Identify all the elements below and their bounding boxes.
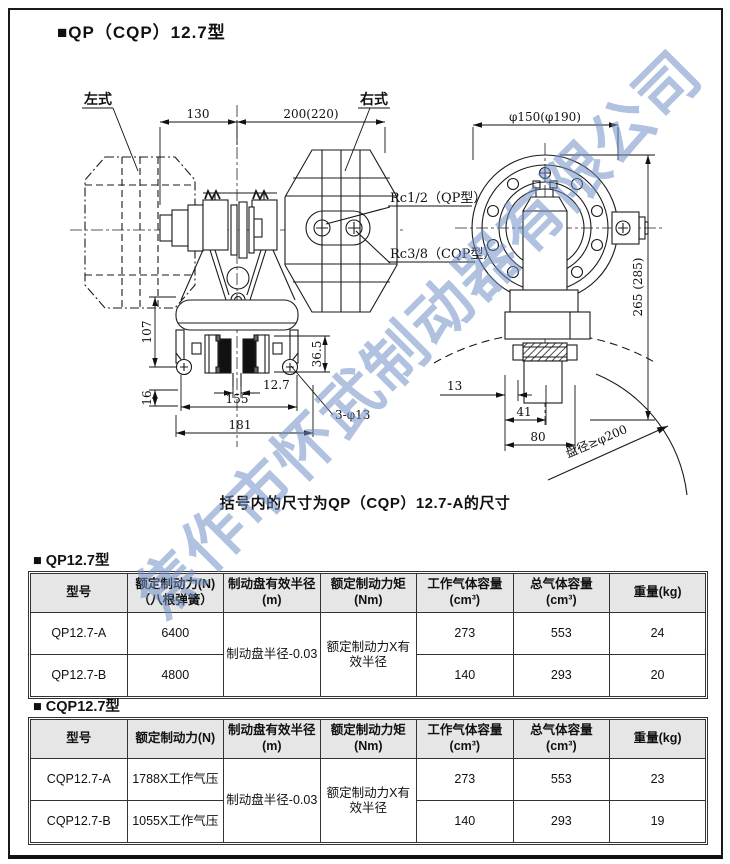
dim-130: 130 (187, 107, 210, 121)
section-title-cqp: ■ CQP12.7型 (33, 695, 120, 716)
col-working-volume: 工作气体容量 (cm³) (417, 720, 514, 759)
drawing-caption: 括号内的尺寸为QP（CQP）12.7-A的尺寸 (0, 492, 730, 513)
col-weight: 重量(kg) (610, 574, 706, 613)
col-model: 型号 (31, 574, 128, 613)
cell-working-volume: 273 (417, 613, 514, 655)
dim-16: 16 (140, 390, 154, 405)
catalog-page: ■QP（CQP）12.7型 (0, 0, 730, 864)
dim-200-220: 200(220) (283, 107, 338, 121)
cell-total-volume: 293 (513, 801, 610, 843)
page-title: ■QP（CQP）12.7型 (57, 18, 226, 43)
cell-total-volume: 293 (513, 655, 610, 697)
rc-cqp-label: Rc3/8（CQP型） (390, 247, 496, 262)
technical-drawing: 左式 右式 Rc1/2（QP型） Rc3/8（CQP型） 盘径≥φ200 130… (0, 85, 730, 500)
qp-spec-table: 型号 额定制动力(N) （八根弹簧） 制动盘有效半径 (m) 额定制动力矩 (N… (30, 573, 706, 697)
disc-diameter-note: 盘径≥φ200 (563, 421, 629, 460)
dim-36-5: 36.5 (310, 341, 324, 368)
left-type-label: 左式 (83, 91, 112, 107)
dim-phi150-phi190: φ150(φ190) (509, 110, 581, 124)
section-title-qp: ■ QP12.7型 (33, 549, 109, 570)
cell-model: CQP12.7-A (31, 759, 128, 801)
cell-working-volume: 273 (417, 759, 514, 801)
cell-weight: 23 (610, 759, 706, 801)
col-disc-radius: 制动盘有效半径 (m) (224, 720, 321, 759)
dim-80: 80 (530, 430, 545, 444)
col-rated-torque: 额定制动力矩 (Nm) (320, 720, 417, 759)
col-rated-force: 额定制动力(N) （八根弹簧） (127, 574, 224, 613)
cell-force: 4800 (127, 655, 224, 697)
dim-155: 155 (226, 392, 249, 406)
cell-model: QP12.7-A (31, 613, 128, 655)
cell-model: CQP12.7-B (31, 801, 128, 843)
rc-qp-label: Rc1/2（QP型） (390, 191, 486, 206)
dim-265-285: 265 (285) (631, 258, 645, 317)
col-weight: 重量(kg) (610, 720, 706, 759)
col-total-volume: 总气体容量 (cm³) (513, 720, 610, 759)
cell-torque-merged: 额定制动力X有效半径 (320, 613, 417, 697)
cell-radius-merged: 制动盘半径-0.03 (224, 613, 321, 697)
col-rated-force: 额定制动力(N) (127, 720, 224, 759)
col-disc-radius: 制动盘有效半径 (m) (224, 574, 321, 613)
cell-force: 1788X工作气压 (127, 759, 224, 801)
cqp-spec-table-wrap: 型号 额定制动力(N) 制动盘有效半径 (m) 额定制动力矩 (Nm) 工作气体… (28, 717, 708, 845)
table-header-row: 型号 额定制动力(N) （八根弹簧） 制动盘有效半径 (m) 额定制动力矩 (N… (31, 574, 706, 613)
dim-41: 41 (516, 405, 531, 419)
cqp-spec-table: 型号 额定制动力(N) 制动盘有效半径 (m) 额定制动力矩 (Nm) 工作气体… (30, 719, 706, 843)
cell-weight: 19 (610, 801, 706, 843)
col-rated-torque: 额定制动力矩 (Nm) (320, 574, 417, 613)
table-row: CQP12.7-A 1788X工作气压 制动盘半径-0.03 额定制动力X有效半… (31, 759, 706, 801)
col-working-volume: 工作气体容量 (cm³) (417, 574, 514, 613)
dim-12-7: 12.7 (263, 378, 290, 392)
table-row: QP12.7-A 6400 制动盘半径-0.03 额定制动力X有效半径 273 … (31, 613, 706, 655)
cell-weight: 20 (610, 655, 706, 697)
table-header-row: 型号 额定制动力(N) 制动盘有效半径 (m) 额定制动力矩 (Nm) 工作气体… (31, 720, 706, 759)
col-total-volume: 总气体容量 (cm³) (513, 574, 610, 613)
cell-working-volume: 140 (417, 655, 514, 697)
dim-107: 107 (140, 321, 154, 344)
cell-radius-merged: 制动盘半径-0.03 (224, 759, 321, 843)
cell-total-volume: 553 (513, 759, 610, 801)
qp-spec-table-wrap: 型号 额定制动力(N) （八根弹簧） 制动盘有效半径 (m) 额定制动力矩 (N… (28, 571, 708, 699)
cell-torque-merged: 额定制动力X有效半径 (320, 759, 417, 843)
cell-model: QP12.7-B (31, 655, 128, 697)
right-type-label: 右式 (359, 91, 388, 107)
col-model: 型号 (31, 720, 128, 759)
cell-force: 1055X工作气压 (127, 801, 224, 843)
cell-weight: 24 (610, 613, 706, 655)
cell-working-volume: 140 (417, 801, 514, 843)
dim-181: 181 (229, 418, 252, 432)
cell-force: 6400 (127, 613, 224, 655)
cell-total-volume: 553 (513, 613, 610, 655)
dim-13: 13 (447, 379, 462, 393)
dim-3-phi13: 3-φ13 (335, 408, 370, 422)
left-view-linework (85, 150, 397, 387)
